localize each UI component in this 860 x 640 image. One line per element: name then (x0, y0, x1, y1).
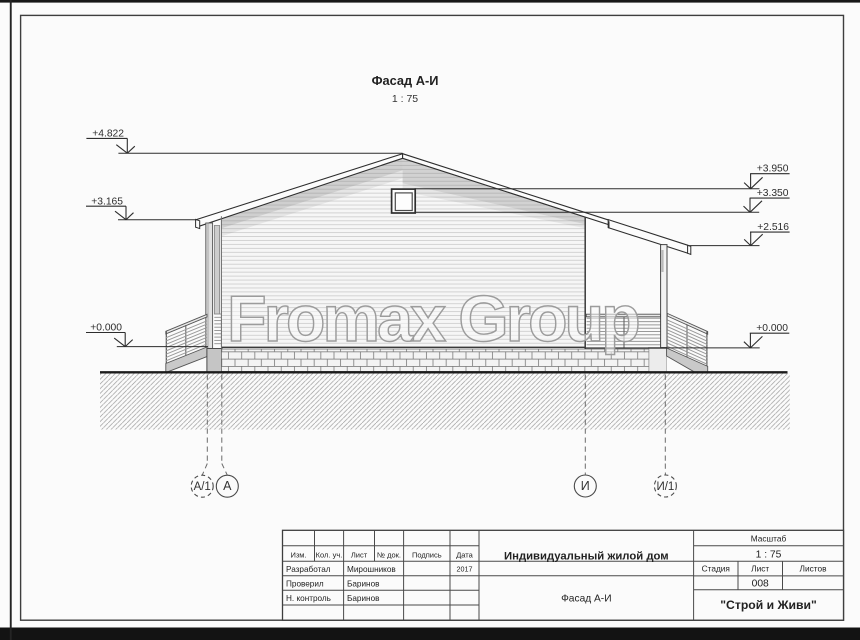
svg-text:№ док.: № док. (377, 550, 401, 559)
svg-text:Кол. уч.: Кол. уч. (316, 550, 343, 559)
svg-text:+4.822: +4.822 (92, 128, 124, 139)
svg-text:1 : 75: 1 : 75 (392, 93, 418, 105)
svg-text:Дата: Дата (456, 550, 473, 559)
svg-text:"Строй и Живи": "Строй и Живи" (720, 598, 816, 612)
svg-text:+0.000: +0.000 (90, 323, 122, 334)
svg-text:Fromax Group: Fromax Group (227, 283, 638, 355)
svg-text:А/1: А/1 (194, 481, 211, 493)
svg-text:1 : 75: 1 : 75 (756, 549, 782, 560)
svg-text:+3.950: +3.950 (757, 164, 789, 175)
svg-text:И/1: И/1 (656, 481, 674, 493)
svg-text:+0.000: +0.000 (756, 323, 788, 334)
svg-text:Стадия: Стадия (702, 564, 730, 574)
svg-text:Баринов: Баринов (347, 594, 379, 603)
svg-text:Подпись: Подпись (412, 550, 442, 559)
svg-text:Фасад А-И: Фасад А-И (561, 594, 611, 605)
svg-text:И: И (581, 479, 590, 493)
svg-text:2017: 2017 (457, 565, 473, 574)
svg-text:Баринов: Баринов (347, 579, 379, 588)
svg-text:Мирошников: Мирошников (347, 565, 396, 574)
svg-text:Индивидуальный жилой дом: Индивидуальный жилой дом (504, 551, 669, 563)
svg-text:Проверил: Проверил (286, 579, 324, 588)
svg-text:Н. контроль: Н. контроль (286, 594, 331, 603)
svg-text:Изм.: Изм. (290, 550, 306, 559)
svg-text:+3.350: +3.350 (757, 188, 789, 199)
svg-text:Разработал: Разработал (286, 565, 331, 574)
svg-text:А: А (223, 479, 232, 493)
svg-text:Масштаб: Масштаб (751, 533, 787, 543)
svg-text:Фасад А-И: Фасад А-И (372, 73, 439, 88)
svg-text:+2.516: +2.516 (757, 222, 789, 233)
svg-text:Лист: Лист (351, 550, 368, 559)
svg-text:Лист: Лист (751, 564, 769, 574)
svg-text:Листов: Листов (800, 564, 828, 574)
svg-text:008: 008 (752, 578, 769, 589)
